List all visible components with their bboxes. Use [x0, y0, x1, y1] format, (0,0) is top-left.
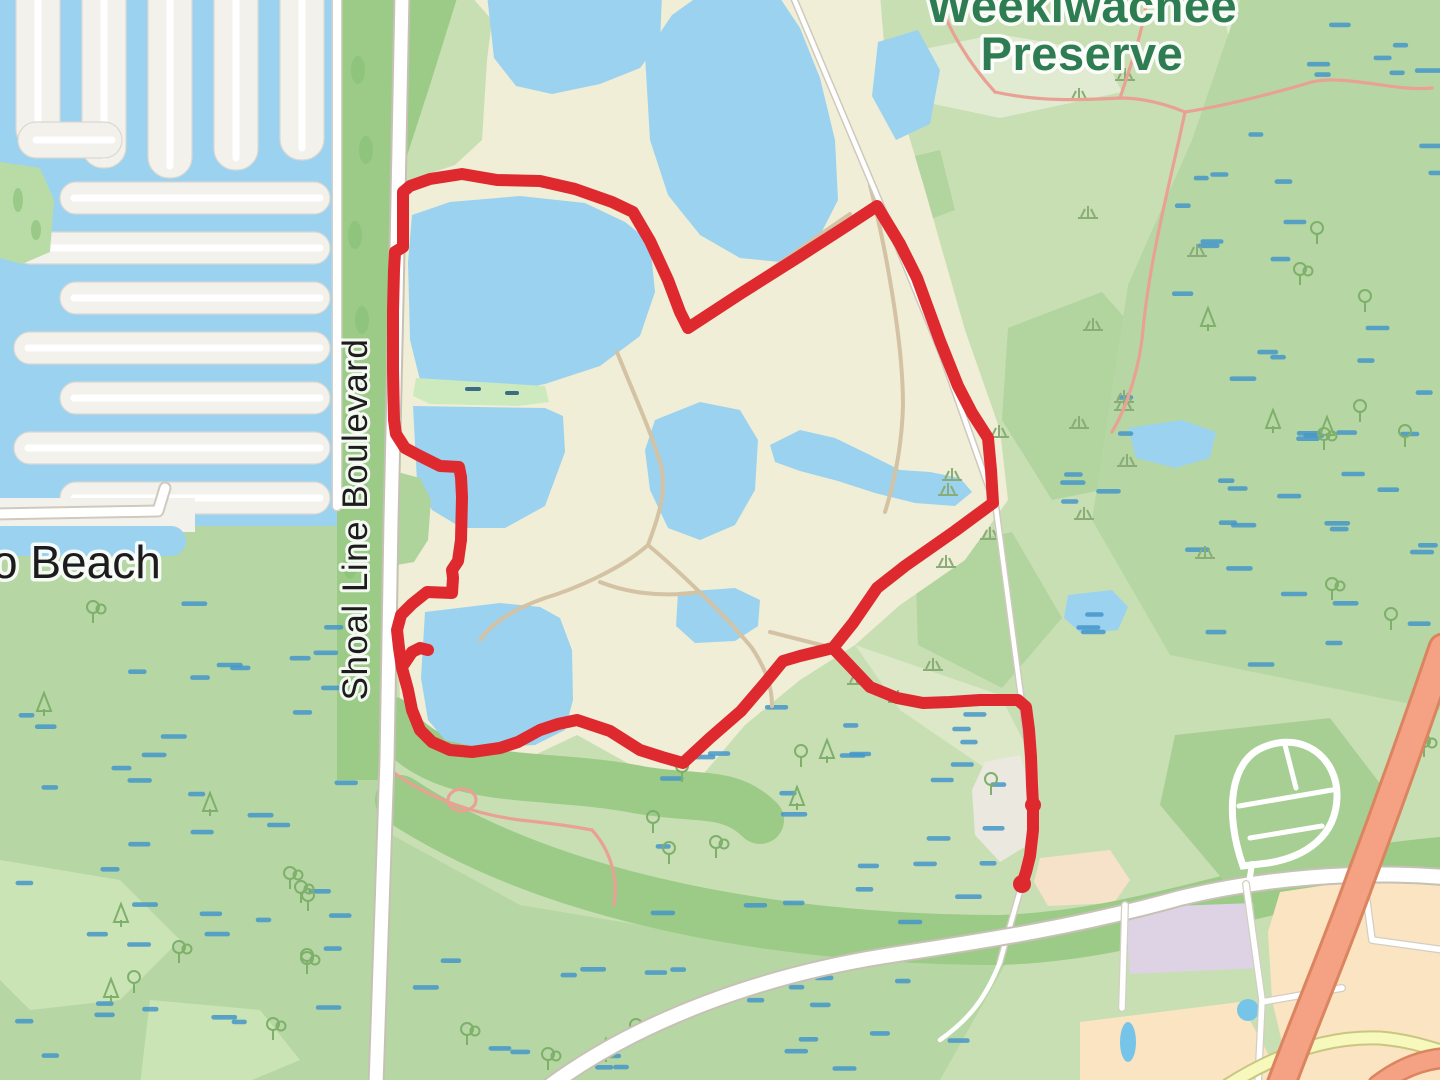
- marsh-dash-icon: [948, 1038, 970, 1043]
- marsh-dash-icon: [1329, 23, 1351, 28]
- marsh-dash-icon: [1341, 472, 1365, 477]
- marsh-dash-icon: [980, 861, 997, 866]
- marsh-dash-icon: [1064, 472, 1083, 477]
- marsh-dash-icon: [810, 1003, 831, 1008]
- marsh-dash-icon: [1277, 494, 1301, 499]
- map-canvas[interactable]: Weekiwachee Preserve Shoal Line Boulevar…: [0, 0, 1440, 1080]
- marsh-dash-icon: [87, 932, 108, 937]
- marsh-dash-icon: [613, 1065, 629, 1070]
- marsh-dash-icon: [645, 970, 668, 975]
- marsh-dash-icon: [898, 920, 922, 925]
- marsh-dash-icon: [1377, 487, 1399, 492]
- marsh-dash-icon: [1283, 220, 1306, 225]
- marsh-dash-icon: [293, 710, 313, 715]
- marsh-dash-icon: [132, 902, 158, 907]
- marsh-dash-icon: [983, 826, 1005, 831]
- canal-district: [0, 0, 350, 556]
- marsh-dash-icon: [335, 781, 359, 786]
- marsh-dash-icon: [1271, 257, 1291, 262]
- marsh-dash-icon: [927, 836, 951, 841]
- marsh-dash-icon: [94, 1013, 115, 1018]
- marsh-dash-icon: [1325, 641, 1342, 646]
- marsh-dash-icon: [510, 1050, 530, 1055]
- marsh-dash-icon: [1228, 486, 1248, 491]
- track-mid-marker: [1025, 797, 1041, 813]
- terrain-layer: [0, 0, 1440, 1080]
- marsh-dash-icon: [1357, 358, 1374, 363]
- marsh-dash-icon: [744, 903, 768, 908]
- marsh-dash-icon: [1408, 621, 1431, 626]
- marsh-dash-icon: [211, 1015, 237, 1020]
- marsh-dash-icon: [858, 864, 879, 869]
- marsh-dash-icon: [765, 705, 788, 710]
- marsh-dash-icon: [142, 1007, 158, 1012]
- marsh-dash-icon: [595, 1065, 613, 1070]
- shoal-line-boulevard-label: Shoal Line Boulevard: [336, 338, 375, 701]
- marsh-dash-icon: [1210, 172, 1228, 177]
- marsh-dash-icon: [1061, 499, 1079, 504]
- marsh-dash-icon: [1374, 56, 1392, 61]
- marsh-dash-icon: [781, 812, 808, 817]
- marsh-dash-icon: [128, 842, 150, 847]
- marsh-dash-icon: [784, 1049, 808, 1054]
- sand-patch: [1034, 850, 1130, 906]
- marsh-dash-icon: [1307, 62, 1330, 67]
- track-end-marker: [1013, 875, 1031, 893]
- marsh-dash-icon: [1248, 662, 1275, 667]
- marsh-dash-icon: [963, 712, 986, 717]
- marsh-dash-icon: [708, 751, 730, 756]
- marsh-dash-icon: [580, 967, 606, 972]
- marsh-dash-icon: [1415, 68, 1440, 73]
- marsh-dash-icon: [843, 723, 859, 728]
- marsh-dash-icon: [441, 958, 462, 963]
- marsh-dash-icon: [660, 776, 684, 781]
- marsh-dash-icon: [849, 752, 871, 757]
- marsh-dash-icon: [1410, 550, 1434, 555]
- marsh-dash-icon: [41, 785, 58, 790]
- marsh-dash-icon: [1314, 72, 1331, 77]
- marsh-dash-icon: [1270, 355, 1286, 360]
- beach-place-label: o Beach: [0, 536, 161, 588]
- marsh-dash-icon: [1096, 489, 1121, 494]
- marsh-dash-icon: [256, 918, 272, 923]
- marsh-dash-icon: [832, 1066, 856, 1071]
- marsh-dash-icon: [191, 830, 214, 835]
- marsh-dash-icon: [1081, 630, 1106, 635]
- marsh-dash-icon: [413, 985, 439, 990]
- marsh-dash-icon: [16, 881, 34, 886]
- marsh-dash-icon: [1118, 431, 1133, 436]
- marsh-dash-icon: [913, 862, 937, 867]
- marsh-dash-icon: [100, 867, 119, 872]
- marsh-dash-icon: [1218, 478, 1235, 483]
- marsh-dash-icon: [1205, 630, 1226, 635]
- marsh-dash-icon: [1296, 436, 1320, 441]
- marsh-dash-icon: [1200, 239, 1223, 244]
- marsh-dash-icon: [200, 912, 223, 917]
- marsh-dash-icon: [1172, 291, 1194, 296]
- marsh-dash-icon: [895, 979, 911, 984]
- marsh-dash-icon: [127, 778, 151, 783]
- marsh-dash-icon: [960, 740, 978, 745]
- marsh-dash-icon: [313, 651, 338, 656]
- marsh-dash-icon: [651, 911, 676, 916]
- marsh-dash-icon: [1085, 612, 1104, 617]
- preserve-label-line2: Preserve: [981, 27, 1184, 80]
- marsh-dash-icon: [111, 766, 131, 771]
- pond-small: [1237, 999, 1259, 1021]
- marsh-dash-icon: [561, 973, 578, 978]
- marsh-dash-icon: [1230, 376, 1257, 381]
- marsh-dash-icon: [316, 1005, 342, 1010]
- marsh-dash-icon: [1219, 520, 1238, 525]
- marsh-dash-icon: [290, 656, 311, 661]
- marsh-dash-icon: [856, 887, 874, 892]
- marsh-dash-icon: [1194, 176, 1209, 181]
- marsh-dash-icon: [789, 985, 805, 990]
- marsh-dash-icon: [267, 823, 290, 828]
- pond-small: [1120, 1022, 1136, 1062]
- marsh-dash-icon: [15, 1019, 34, 1024]
- marsh-dash-icon: [127, 942, 151, 947]
- marsh-dash-icon: [161, 734, 187, 739]
- marsh-dash-icon: [329, 913, 352, 918]
- marsh-dash-icon: [1226, 566, 1253, 571]
- marsh-dash-icon: [188, 792, 205, 797]
- marsh-dash-icon: [670, 967, 686, 972]
- marsh-dash-icon: [142, 753, 167, 758]
- marsh-dash-icon: [1419, 144, 1440, 149]
- marsh-dash-icon: [799, 1037, 819, 1042]
- marsh-dash-icon: [190, 675, 210, 680]
- marsh-dash-icon: [952, 727, 971, 732]
- marsh-dash-icon: [19, 713, 35, 718]
- marsh-dash-icon: [747, 998, 764, 1003]
- marsh-dash-icon: [1324, 521, 1350, 526]
- marsh-dash-icon: [232, 1020, 247, 1025]
- marsh-dash-icon: [35, 724, 57, 729]
- marsh-dash-icon: [870, 1031, 890, 1036]
- marsh-dash-icon: [931, 778, 954, 783]
- marsh-dash-icon: [489, 1046, 512, 1051]
- marsh-dash-icon: [1336, 430, 1357, 435]
- marsh-dash-icon: [205, 932, 231, 937]
- marsh-dash-icon: [1389, 71, 1404, 76]
- marsh-dash-icon: [128, 669, 147, 674]
- marsh-dash-icon: [1393, 43, 1408, 48]
- marsh-dash-icon: [1330, 527, 1349, 532]
- marsh-dash-icon: [248, 813, 274, 818]
- marsh-dash-icon: [955, 894, 982, 899]
- marsh-dash-icon: [324, 946, 342, 951]
- marsh-dash-icon: [181, 601, 207, 606]
- marsh-dash-icon: [783, 901, 805, 906]
- marsh-dash-icon: [1416, 390, 1433, 395]
- marsh-dash-icon: [1076, 625, 1100, 630]
- marsh-dash-icon: [1366, 326, 1390, 331]
- marsh-dash-icon: [1333, 601, 1359, 606]
- marsh-dash-icon: [1248, 132, 1263, 137]
- marsh-dash-icon: [1257, 350, 1278, 355]
- marsh-dash-icon: [1175, 203, 1191, 208]
- marsh-dash-icon: [1281, 592, 1308, 597]
- marsh-dash-icon: [1275, 179, 1293, 184]
- marsh-dash-icon: [951, 762, 974, 767]
- marsh-dash-icon: [217, 663, 243, 668]
- marsh-dash-icon: [1418, 543, 1438, 548]
- marsh-dash-icon: [1060, 480, 1085, 485]
- marsh-dash-icon: [42, 1053, 60, 1058]
- marsh-dash-icon: [1185, 547, 1210, 552]
- marsh-dash-icon: [1428, 171, 1440, 176]
